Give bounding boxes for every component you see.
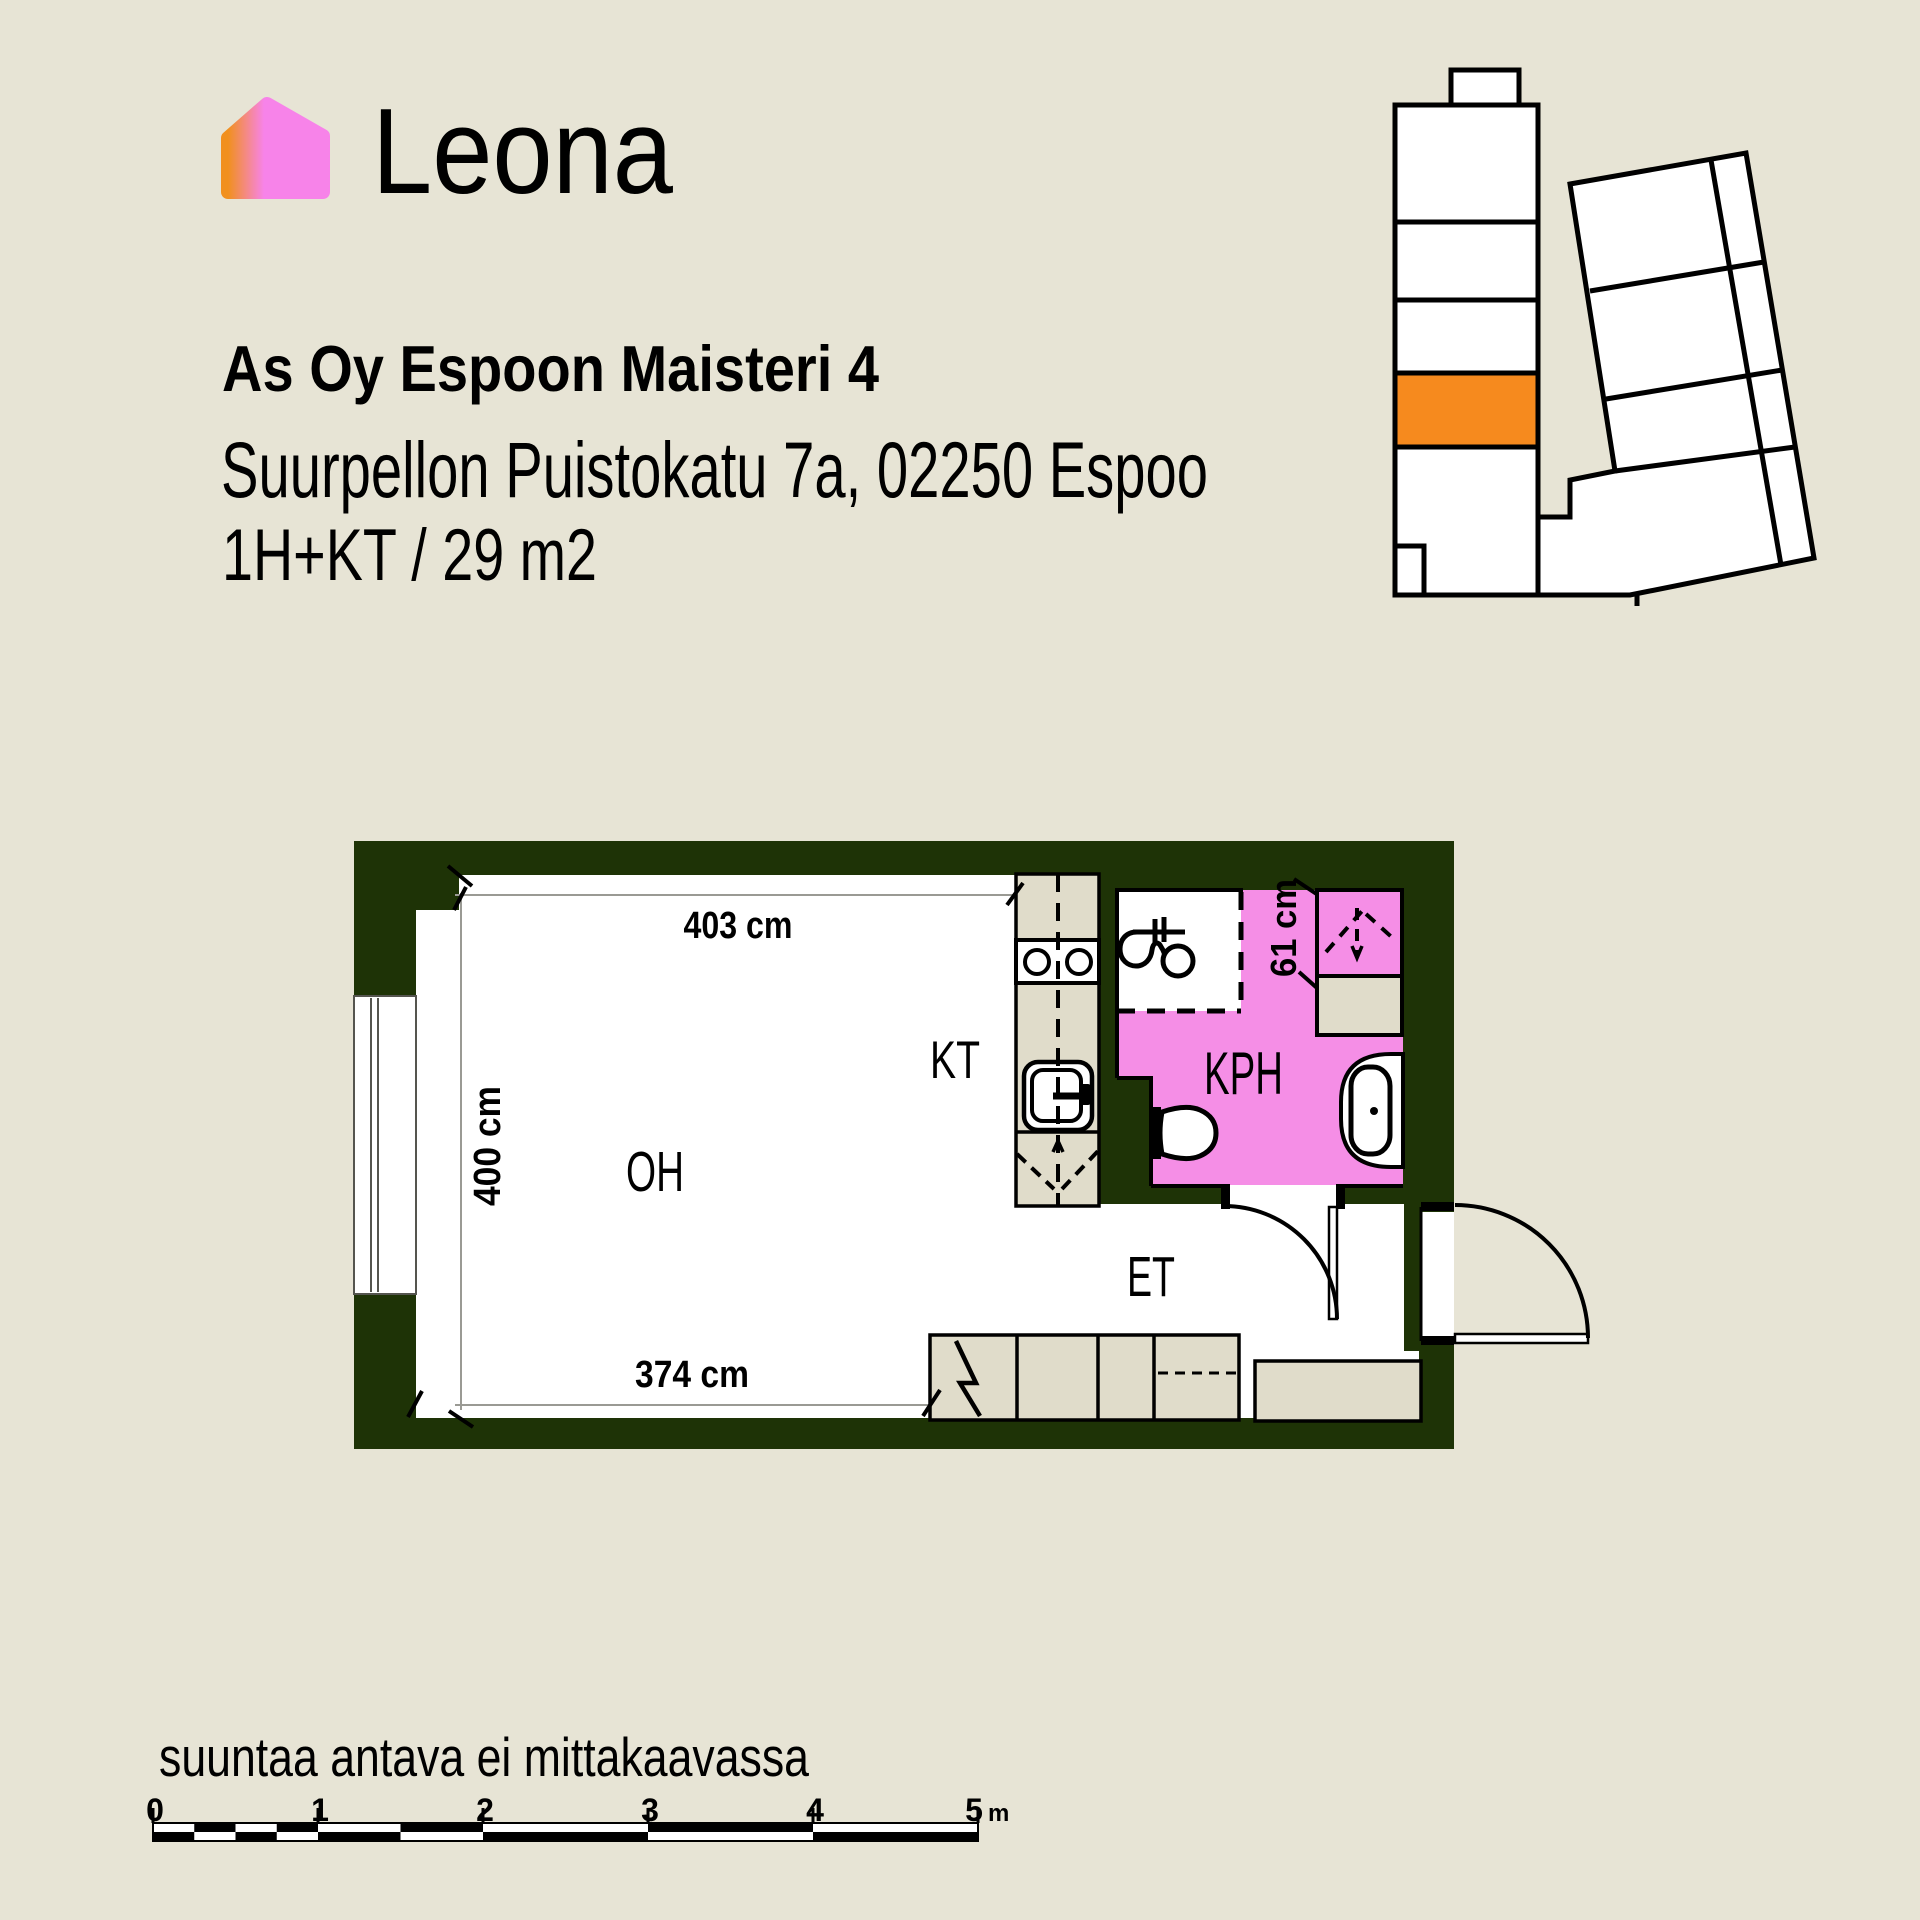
svg-text:5: 5 xyxy=(965,1792,983,1828)
svg-text:3: 3 xyxy=(641,1792,659,1828)
svg-text:374 cm: 374 cm xyxy=(635,1354,749,1396)
svg-text:m: m xyxy=(988,1800,1009,1827)
svg-text:1: 1 xyxy=(311,1792,329,1828)
svg-text:KPH: KPH xyxy=(1204,1040,1283,1107)
svg-text:61 cm: 61 cm xyxy=(1263,879,1304,977)
svg-text:400 cm: 400 cm xyxy=(467,1086,509,1206)
svg-text:403 cm: 403 cm xyxy=(684,905,793,947)
svg-text:4: 4 xyxy=(806,1792,824,1828)
svg-text:2: 2 xyxy=(476,1792,494,1828)
svg-text:KT: KT xyxy=(930,1031,980,1090)
svg-text:As Oy Espoon Maisteri 4: As Oy Espoon Maisteri 4 xyxy=(222,332,879,405)
svg-text:Leona: Leona xyxy=(372,83,673,219)
svg-text:ET: ET xyxy=(1127,1245,1175,1309)
svg-text:1H+KT / 29 m2: 1H+KT / 29 m2 xyxy=(222,515,597,596)
svg-text:Suurpellon Puistokatu 7a, 0225: Suurpellon Puistokatu 7a, 02250 Espoo xyxy=(221,425,1208,514)
svg-text:0: 0 xyxy=(146,1792,164,1828)
svg-text:suuntaa antava ei mittakaavass: suuntaa antava ei mittakaavassa xyxy=(159,1726,809,1788)
svg-text:OH: OH xyxy=(626,1140,684,1204)
